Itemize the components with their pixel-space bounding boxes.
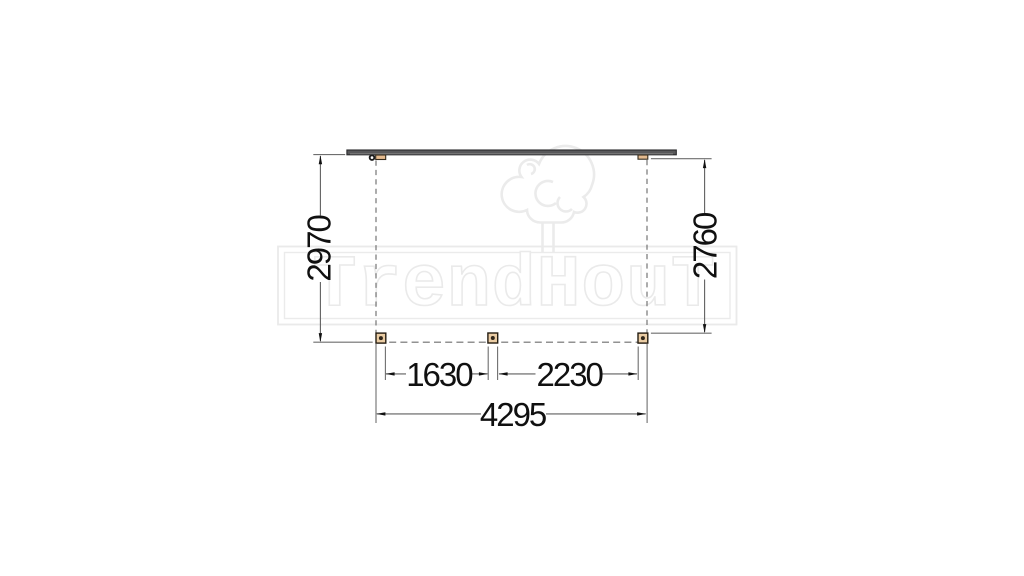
svg-text:2230: 2230 [536, 356, 603, 393]
svg-text:TrendHouT: TrendHouT [313, 244, 716, 327]
svg-text:2970: 2970 [300, 215, 337, 282]
svg-text:4295: 4295 [480, 396, 546, 433]
svg-text:1630: 1630 [406, 356, 473, 393]
svg-text:2760: 2760 [686, 212, 723, 279]
